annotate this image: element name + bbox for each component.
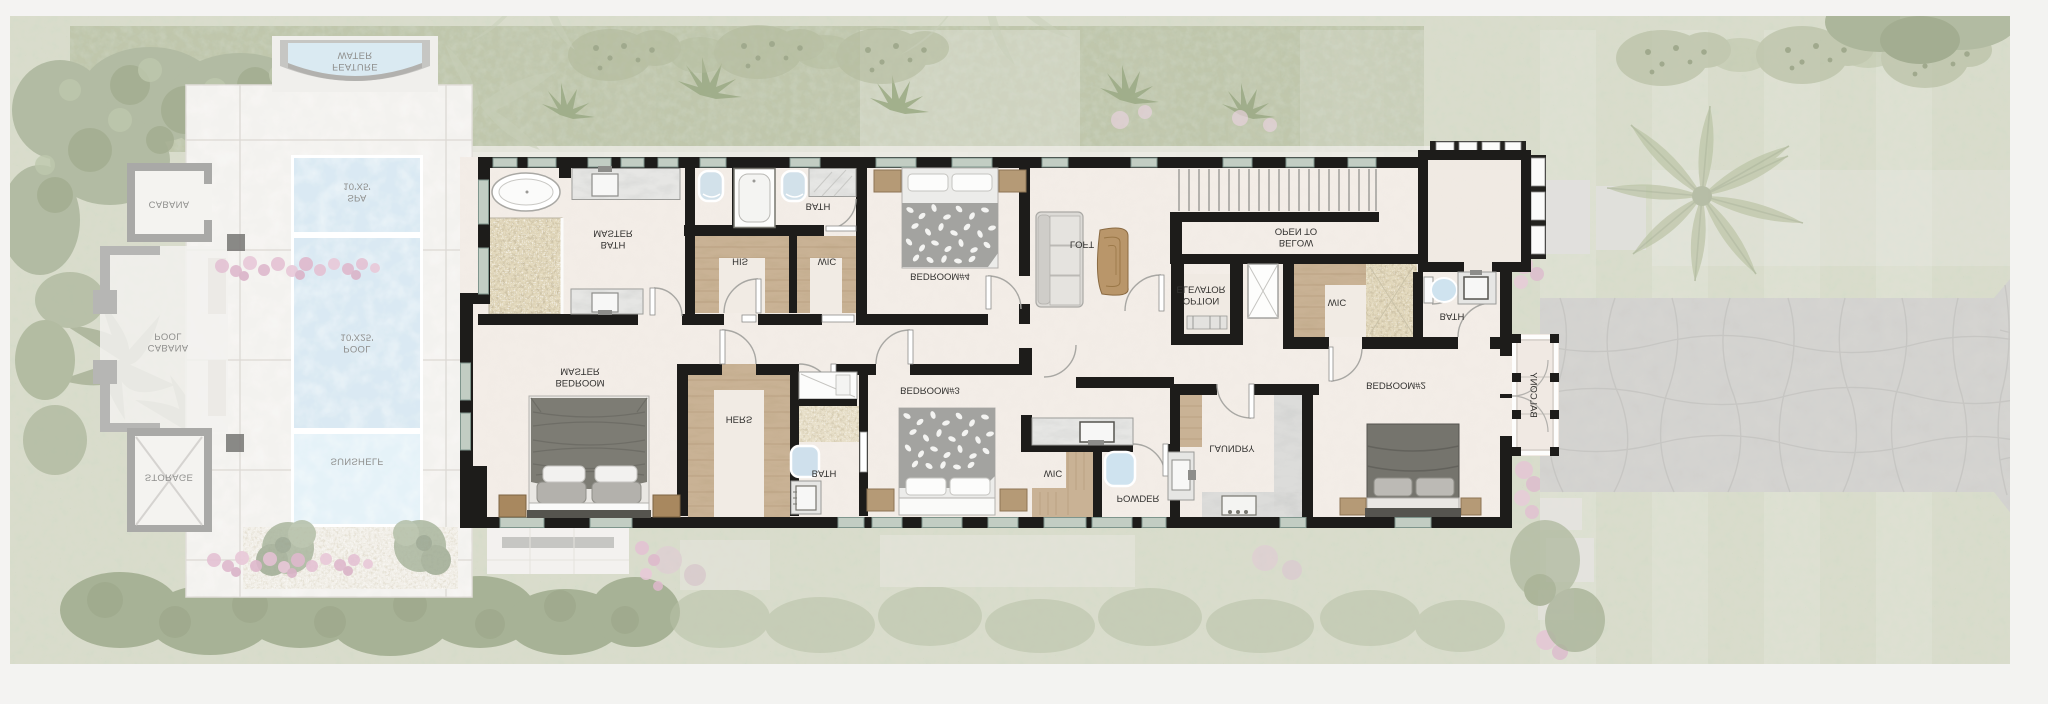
svg-text:HERS: HERS [726, 414, 752, 425]
svg-text:STORAGE: STORAGE [145, 472, 193, 483]
svg-text:10'X5': 10'X5' [343, 181, 371, 192]
svg-text:OPEN TO: OPEN TO [1275, 226, 1317, 237]
svg-text:WATER: WATER [338, 50, 373, 61]
svg-text:BALCONY: BALCONY [1528, 372, 1539, 418]
svg-text:BATH: BATH [806, 201, 831, 212]
svg-text:WIC: WIC [1328, 297, 1347, 308]
svg-text:LOFT: LOFT [1070, 239, 1094, 250]
svg-text:ELEVATOR: ELEVATOR [1176, 284, 1225, 295]
svg-text:BELOW: BELOW [1279, 237, 1313, 248]
svg-text:SPA: SPA [347, 192, 367, 203]
svg-text:BATH: BATH [812, 468, 837, 479]
svg-text:WIC: WIC [1044, 468, 1063, 479]
svg-text:MASTER: MASTER [593, 228, 633, 239]
svg-text:FEATURE: FEATURE [332, 61, 378, 72]
svg-text:POWDER: POWDER [1117, 493, 1160, 504]
svg-text:POOL: POOL [154, 331, 182, 342]
svg-text:10'X25': 10'X25' [340, 332, 373, 343]
svg-text:WIC: WIC [818, 256, 837, 267]
svg-text:CABANA: CABANA [149, 199, 190, 210]
svg-text:CABANA: CABANA [148, 342, 189, 353]
svg-text:OPTION: OPTION [1183, 295, 1220, 306]
svg-text:BEDROOM#3: BEDROOM#3 [900, 385, 960, 396]
svg-text:BATH: BATH [1440, 311, 1465, 322]
svg-text:BEDROOM#4: BEDROOM#4 [910, 271, 970, 282]
svg-text:POOL: POOL [343, 343, 371, 354]
svg-text:SUNSHELF: SUNSHELF [330, 456, 383, 467]
svg-text:LAUNDRY: LAUNDRY [1209, 443, 1255, 454]
svg-text:MASTER: MASTER [560, 366, 600, 377]
svg-text:BEDROOM: BEDROOM [555, 377, 604, 388]
svg-text:BATH: BATH [601, 239, 626, 250]
svg-text:BEDROOM#2: BEDROOM#2 [1366, 380, 1426, 391]
svg-text:HIS: HIS [732, 256, 748, 267]
